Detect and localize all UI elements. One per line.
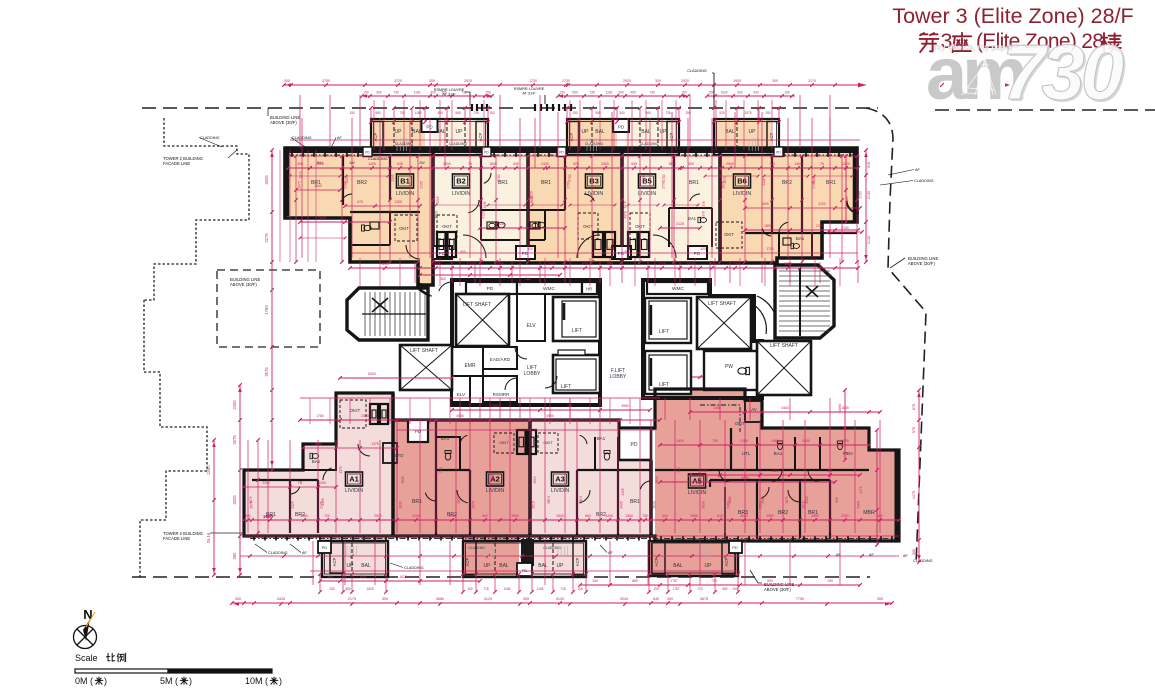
svg-text:1700: 1700 [443,247,450,251]
svg-text:300: 300 [677,467,681,473]
svg-text:1165: 1165 [504,587,511,591]
svg-text:1805: 1805 [761,202,769,206]
svg-text:2400: 2400 [541,162,549,166]
svg-text:CLADDING: CLADDING [543,546,561,550]
svg-text:760: 760 [642,514,648,518]
svg-text:2460: 2460 [857,501,861,509]
svg-text:3630: 3630 [655,476,659,483]
svg-text:2500: 2500 [511,514,519,518]
svg-text:2965: 2965 [690,514,698,518]
svg-text:AT 31/F: AT 31/F [522,92,536,96]
svg-text:2920: 2920 [464,79,472,83]
svg-text:3100: 3100 [859,191,863,199]
svg-text:UP: UP [395,129,403,135]
svg-text:1600: 1600 [314,442,322,446]
svg-text:2515: 2515 [761,496,765,503]
svg-text:3630: 3630 [399,501,403,509]
svg-text:7.35: 7.35 [439,467,443,473]
svg-text:1360: 1360 [794,162,802,166]
svg-text:1575: 1575 [744,111,751,115]
svg-text:2100: 2100 [816,224,824,228]
svg-text:2675: 2675 [264,367,269,377]
svg-text:AF: AF [869,553,875,557]
svg-text:1595: 1595 [841,439,849,443]
svg-text:3680: 3680 [436,597,444,601]
svg-text:3326: 3326 [264,175,269,185]
svg-text:150: 150 [592,579,598,583]
svg-text:2175: 2175 [291,501,295,508]
svg-text:1375: 1375 [371,442,379,446]
svg-text:400: 400 [527,247,533,251]
svg-text:my choice, my paper: my choice, my paper [934,43,1013,52]
svg-text:2135: 2135 [321,498,325,505]
svg-text:WMC: WMC [543,286,556,292]
svg-text:150: 150 [681,91,687,95]
svg-text:2100: 2100 [316,162,324,166]
svg-text:1905: 1905 [733,79,741,83]
svg-text:UP: UP [347,563,355,569]
svg-text:PD: PD [776,151,781,155]
svg-text:AF: AF [302,551,308,555]
svg-text:ACP: ACP [332,557,337,566]
svg-text:BA1: BA1 [774,451,783,456]
svg-text:RSMRR LOUVRE: RSMRR LOUVRE [514,87,545,91]
svg-text:1285: 1285 [394,200,402,204]
svg-text:AF: AF [915,168,921,172]
svg-text:1225: 1225 [381,262,389,266]
svg-text:2500: 2500 [726,162,734,166]
svg-text:OKIT: OKIT [735,421,746,426]
svg-text:AF: AF [690,147,696,151]
svg-text:AF: AF [903,554,909,558]
svg-text:300: 300 [667,597,673,601]
svg-text:FACADE LINE: FACADE LINE [163,161,190,166]
svg-text:830: 830 [835,497,839,503]
svg-text:AF: AF [337,136,343,140]
svg-text:715: 715 [560,587,566,591]
svg-text:1405: 1405 [605,514,613,518]
svg-text:LIFT: LIFT [659,382,669,388]
svg-text:AF: AF [598,147,604,151]
svg-text:735: 735 [461,91,467,95]
svg-text:4980: 4980 [491,404,499,408]
svg-text:ACP: ACP [654,557,659,566]
svg-text:580: 580 [722,587,728,591]
svg-text:LOBBY: LOBBY [524,371,541,377]
svg-text:BR2: BR2 [357,180,367,186]
svg-text:CLADDING: CLADDING [268,551,288,555]
svg-text:UTL: UTL [742,451,751,456]
svg-text:ABOVE (30/F): ABOVE (30/F) [270,120,297,125]
svg-text:WMC: WMC [672,286,685,292]
svg-text:CLADDING: CLADDING [368,157,388,161]
svg-text:2640: 2640 [314,184,322,188]
svg-text:ABOVE (30/F): ABOVE (30/F) [230,282,257,287]
svg-text:2130: 2130 [867,191,871,199]
svg-text:630: 630 [737,91,743,95]
svg-text:360: 360 [525,277,531,281]
svg-text:AF: AF [800,147,806,151]
svg-text:LIV/DIN: LIV/DIN [486,488,504,494]
svg-text:2460: 2460 [771,439,779,443]
svg-text:AW: AW [349,161,355,165]
svg-text:3675: 3675 [700,597,708,601]
svg-text:880: 880 [345,587,351,591]
svg-text:2435: 2435 [620,501,624,509]
svg-text:385.5: 385.5 [547,496,551,504]
svg-text:LIV/DIN: LIV/DIN [396,191,414,197]
svg-text:925: 925 [719,111,725,115]
svg-text:LAV: LAV [749,407,757,412]
svg-text:300: 300 [662,514,668,518]
svg-text:BAL: BAL [538,563,548,569]
svg-text:BAL: BAL [499,563,509,569]
svg-text:640: 640 [653,597,659,601]
svg-text:UP: UP [705,563,713,569]
svg-text:LIFT: LIFT [659,329,669,335]
svg-text:723: 723 [697,587,703,591]
svg-text:3120: 3120 [484,597,492,601]
svg-text:HR: HR [586,287,592,292]
svg-text:3630: 3630 [642,174,646,181]
svg-text:1700: 1700 [766,247,773,251]
svg-text:BR1: BR1 [826,180,836,186]
svg-text:965: 965 [441,91,447,95]
svg-text:UP: UP [749,129,757,135]
svg-text:150: 150 [765,111,771,115]
svg-text:BA1: BA1 [688,216,697,221]
svg-text:Tower 3 (Elite Zone) 28/F: Tower 3 (Elite Zone) 28/F [892,4,1133,28]
svg-text:1100: 1100 [466,262,474,266]
svg-text:600: 600 [482,514,488,518]
svg-text:OKIT: OKIT [499,440,509,445]
svg-text:300: 300 [655,79,661,83]
svg-text:723: 723 [711,579,717,583]
svg-text:RSMRR LOUVRE: RSMRR LOUVRE [434,88,465,92]
svg-text:735: 735 [393,91,399,95]
svg-text:2435: 2435 [621,488,625,495]
svg-text:300: 300 [430,91,436,95]
svg-text:1760: 1760 [264,305,269,315]
svg-text:945: 945 [513,162,519,166]
svg-text:2675: 2675 [232,435,237,445]
svg-text:300: 300 [912,549,916,555]
svg-text:3630: 3630 [705,474,709,481]
svg-text:AF: AF [836,553,842,557]
svg-text:1400: 1400 [686,262,694,266]
svg-text:5M (: 5M ( [160,676,178,686]
svg-text:2200: 2200 [658,262,666,266]
svg-text:735: 735 [473,111,479,115]
svg-text:2700: 2700 [662,174,666,181]
svg-text:2700: 2700 [497,174,501,181]
svg-text:2100: 2100 [412,514,420,518]
svg-text:5515: 5515 [436,196,440,203]
svg-text:3040: 3040 [620,597,628,601]
svg-text:EMR: EMR [464,363,476,369]
svg-text:1165: 1165 [537,587,544,591]
svg-text:PD: PD [484,151,489,155]
svg-text:300: 300 [772,79,778,83]
svg-text:730: 730 [1002,28,1124,116]
svg-text:10M (: 10M ( [245,676,268,686]
svg-text:FACADE LINE: FACADE LINE [163,536,190,541]
svg-text:3630: 3630 [653,501,657,509]
svg-text:3075: 3075 [249,496,253,503]
svg-text:2130: 2130 [867,236,871,244]
svg-text:663: 663 [585,514,591,518]
svg-text:PD: PD [522,568,528,573]
svg-text:2100: 2100 [818,202,826,206]
svg-text:LIV/DIN: LIV/DIN [345,488,363,494]
svg-text:BR2: BR2 [782,180,792,186]
svg-text:2146: 2146 [762,178,766,185]
svg-text:AF: AF [847,147,853,151]
svg-text:2275: 2275 [264,233,269,243]
svg-text:1730: 1730 [562,79,570,83]
svg-text:300: 300 [429,79,435,83]
svg-text:2920: 2920 [681,79,689,83]
svg-text:2515: 2515 [533,476,537,483]
svg-text:600: 600 [460,250,466,254]
svg-text:): ) [189,676,192,686]
svg-text:3120: 3120 [556,597,564,601]
svg-text:LIFT: LIFT [572,328,582,334]
svg-text:150: 150 [467,587,473,591]
svg-text:A1: A1 [349,475,359,484]
svg-text:1350: 1350 [300,514,308,518]
svg-text:1375: 1375 [339,466,343,473]
svg-text:ACP: ACP [575,557,580,566]
svg-text:3130: 3130 [345,176,349,183]
svg-text:3460: 3460 [781,406,789,410]
svg-text:150: 150 [327,575,333,579]
svg-text:300: 300 [619,111,625,115]
svg-text:2515: 2515 [491,474,495,481]
svg-text:UP: UP [582,129,590,135]
svg-text:LIFT: LIFT [561,384,571,390]
svg-text:3630: 3630 [702,501,706,509]
svg-text:2515: 2515 [532,501,536,509]
svg-text:300: 300 [284,79,290,83]
svg-text:ELV: ELV [457,392,466,397]
svg-text:BA1: BA1 [597,436,606,441]
svg-text:B2: B2 [456,177,466,186]
svg-text:150: 150 [485,91,491,95]
svg-text:2075: 2075 [785,496,789,503]
svg-text:150: 150 [349,111,355,115]
svg-text:2400: 2400 [361,414,369,418]
svg-text:2200: 2200 [432,262,440,266]
svg-text:RSMRR: RSMRR [493,392,511,397]
svg-text:2300: 2300 [841,514,849,518]
svg-text:1360: 1360 [625,514,633,518]
svg-text:BAL: BAL [361,563,371,569]
svg-text:925: 925 [582,262,588,266]
svg-text:1805: 1805 [764,224,772,228]
svg-text:386.5: 386.5 [579,496,583,504]
svg-text:BAL: BAL [725,129,735,135]
svg-text:300: 300 [523,597,529,601]
svg-text:300: 300 [232,552,237,560]
svg-text:CLADDING: CLADDING [404,566,424,570]
svg-text:OKIT: OKIT [724,232,734,237]
svg-text:1620: 1620 [771,469,778,473]
svg-text:600: 600 [624,250,630,254]
svg-text:1635: 1635 [448,514,456,518]
svg-text:3425: 3425 [277,597,285,601]
svg-text:150: 150 [363,91,369,95]
svg-text:575: 575 [912,427,916,433]
svg-text:300: 300 [618,91,624,95]
svg-text:4475: 4475 [912,491,916,499]
svg-text:950: 950 [572,91,578,95]
svg-text:2570: 2570 [457,496,461,503]
svg-text:1625: 1625 [399,575,407,579]
svg-text:LIFT SHAFT: LIFT SHAFT [708,301,736,307]
svg-text:ELV: ELV [526,323,536,329]
svg-text:1180: 1180 [415,111,422,115]
svg-text:CLADDING: CLADDING [914,179,934,183]
svg-text:2920: 2920 [623,79,631,83]
svg-text:2080: 2080 [811,514,819,518]
svg-text:360: 360 [440,277,446,281]
svg-text:6300: 6300 [368,372,376,376]
svg-text:830: 830 [360,575,366,579]
svg-text:2500: 2500 [548,262,556,266]
svg-text:LIFT SHAFT: LIFT SHAFT [770,343,798,349]
svg-text:3174: 3174 [808,79,816,83]
svg-text:300: 300 [688,162,694,166]
svg-text:B6: B6 [737,177,747,186]
svg-text:4980: 4980 [701,469,708,473]
svg-text:BA1: BA1 [312,459,321,464]
svg-text:5515: 5515 [435,211,439,219]
svg-text:945: 945 [631,162,637,166]
svg-text:4135: 4135 [482,211,486,219]
svg-text:300: 300 [235,597,241,601]
svg-text:CLADDING: CLADDING [449,142,468,146]
svg-text:4980: 4980 [621,404,629,408]
svg-text:2500: 2500 [374,514,382,518]
svg-text:26.16: 26.16 [206,532,211,543]
svg-text:PD: PD [631,442,638,448]
svg-text:150: 150 [489,111,495,115]
svg-text:ABOVE (30/F): ABOVE (30/F) [764,587,791,592]
svg-text:OKIT: OKIT [442,224,452,229]
svg-text:PW: PW [725,364,733,370]
svg-text:ACP: ACP [724,557,729,566]
svg-text:B1: B1 [400,177,410,186]
svg-text:2480: 2480 [802,439,810,443]
svg-text:735: 735 [589,91,595,95]
svg-text:1190: 1190 [606,91,613,95]
svg-text:UP: UP [660,129,668,135]
svg-text:1787: 1787 [672,587,679,591]
svg-text:LIV/DIN: LIV/DIN [733,191,751,197]
svg-text:0M (: 0M ( [75,676,93,686]
svg-text:150: 150 [784,91,790,95]
svg-text:915: 915 [867,162,871,168]
svg-text:930: 930 [753,91,759,95]
svg-text:150: 150 [559,91,565,95]
svg-text:75: 75 [820,162,824,166]
svg-text:3325: 3325 [232,495,237,505]
svg-text:1700: 1700 [604,247,611,251]
svg-text:2500: 2500 [556,514,564,518]
svg-text:3850: 3850 [784,262,792,266]
svg-text:980: 980 [375,111,381,115]
svg-text:2640: 2640 [318,216,326,220]
svg-text:2185: 2185 [740,439,748,443]
svg-text:590: 590 [767,579,773,583]
svg-text:2100: 2100 [841,226,849,230]
svg-text:BR1: BR1 [689,180,699,186]
svg-text:675: 675 [912,404,916,410]
svg-text:75: 75 [298,480,303,485]
svg-text:B3: B3 [589,177,599,186]
svg-text:1625: 1625 [366,587,373,591]
svg-text:4135: 4135 [483,201,487,208]
svg-text:UP: UP [456,129,464,135]
svg-text:1787: 1787 [670,579,678,583]
svg-text:2135: 2135 [420,181,424,189]
svg-text:150: 150 [572,111,578,115]
svg-text:150: 150 [732,587,738,591]
svg-text:2515: 2515 [805,496,809,503]
svg-text:3075: 3075 [298,181,302,189]
svg-text:BR1: BR1 [630,499,640,505]
svg-text:BAL: BAL [436,129,446,135]
svg-text:1290: 1290 [318,481,326,485]
svg-text:2700: 2700 [568,174,572,181]
svg-text:1920: 1920 [720,91,727,95]
svg-text:Scale: Scale [75,653,98,663]
svg-text:LIFT SHAFT: LIFT SHAFT [463,302,491,308]
svg-text:1780: 1780 [316,414,324,418]
svg-text:2080: 2080 [740,514,748,518]
svg-text:720: 720 [324,514,330,518]
svg-text:2125: 2125 [676,222,684,226]
svg-text:150: 150 [329,587,335,591]
svg-text:610: 610 [717,514,723,518]
svg-text:LIV/DIN: LIV/DIN [452,191,470,197]
svg-text:): ) [104,676,107,686]
svg-text:CLADDING: CLADDING [585,142,604,146]
svg-text:4378: 4378 [623,201,627,208]
svg-text:4175: 4175 [859,486,863,493]
svg-text:PD: PD [694,251,701,256]
svg-text:LIV/DIN: LIV/DIN [551,488,569,494]
svg-text:N: N [83,607,92,622]
svg-text:735: 735 [649,91,655,95]
svg-text:2570: 2570 [723,176,727,183]
svg-text:A5: A5 [692,477,702,486]
svg-text:4378: 4378 [624,211,628,219]
svg-text:875: 875 [357,200,363,204]
svg-text:2175: 2175 [348,597,356,601]
svg-text:AF: AF [608,551,614,555]
svg-text:CLADDING: CLADDING [468,546,486,550]
svg-text:1405: 1405 [368,162,376,166]
svg-text:2135: 2135 [391,174,395,181]
svg-text:MBR: MBR [863,510,875,516]
svg-text:730: 730 [712,439,718,443]
svg-text:150: 150 [577,587,583,591]
svg-text:CLADDING: CLADDING [687,69,707,73]
svg-text:1225: 1225 [731,262,739,266]
svg-text:400: 400 [700,247,706,251]
